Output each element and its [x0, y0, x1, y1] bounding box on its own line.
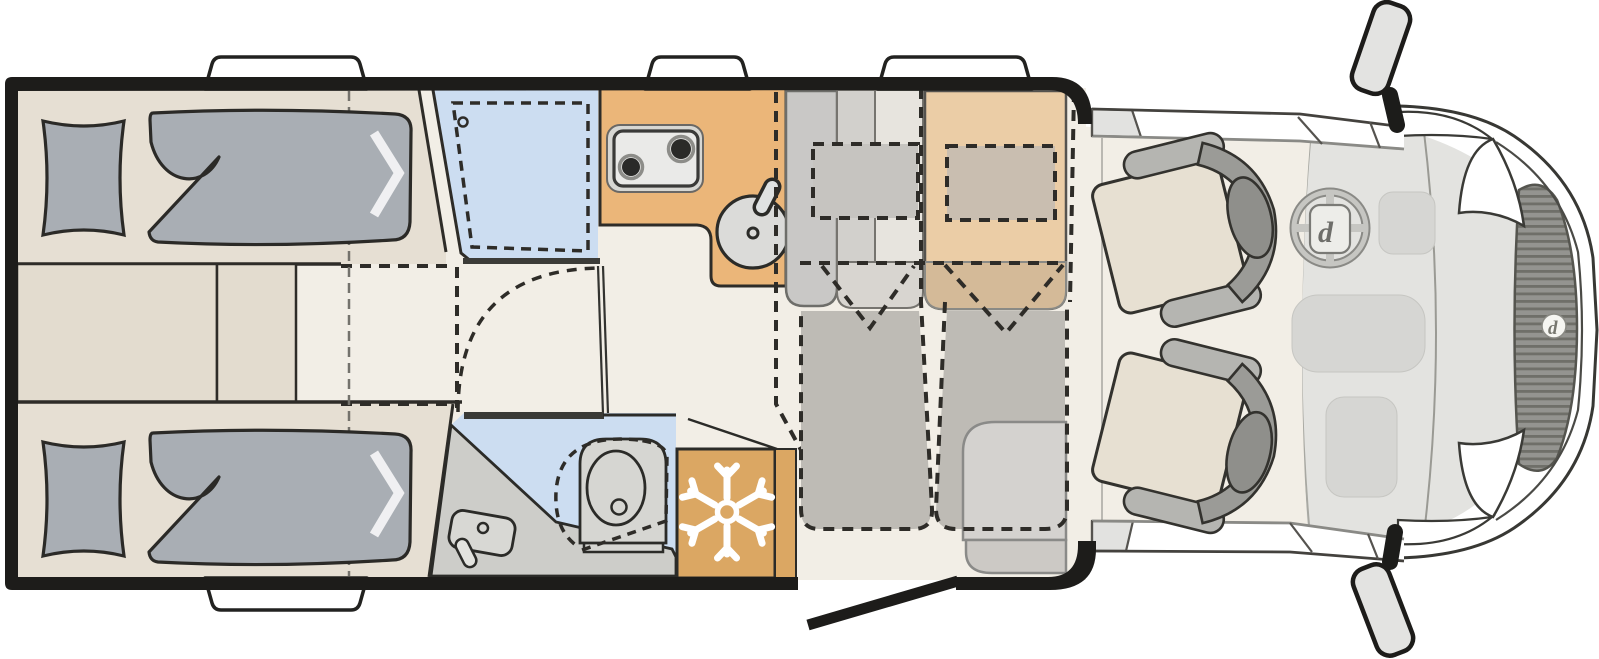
svg-text:d: d [1548, 318, 1558, 339]
svg-text:d: d [1318, 216, 1334, 249]
